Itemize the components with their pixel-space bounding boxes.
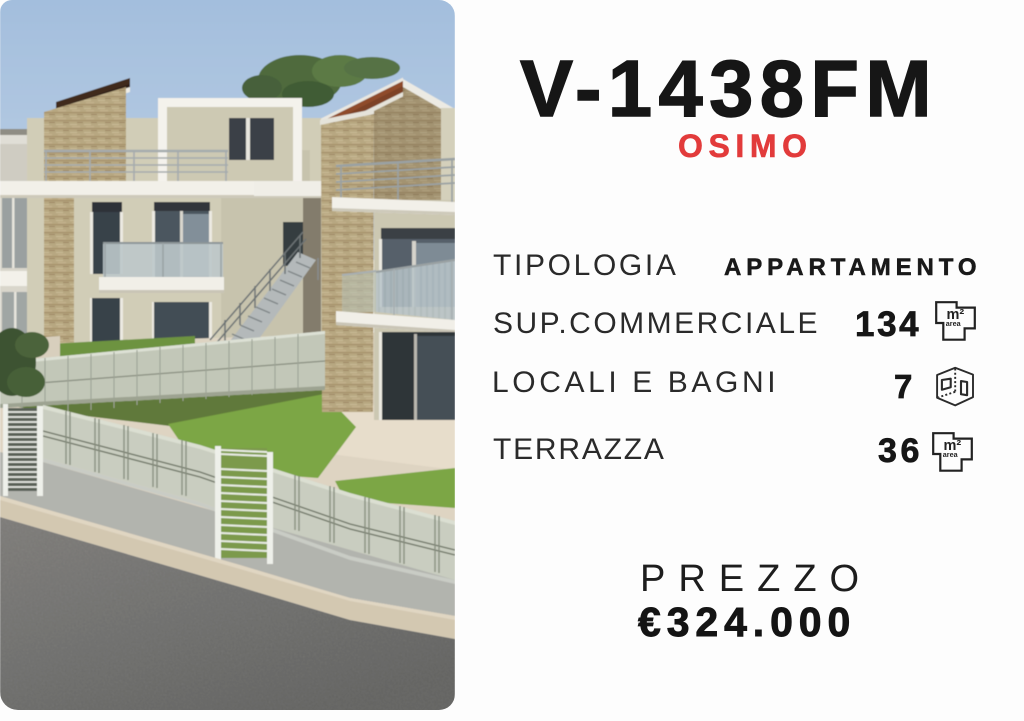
svg-text:area: area [943,450,959,459]
svg-text:area: area [946,319,962,328]
